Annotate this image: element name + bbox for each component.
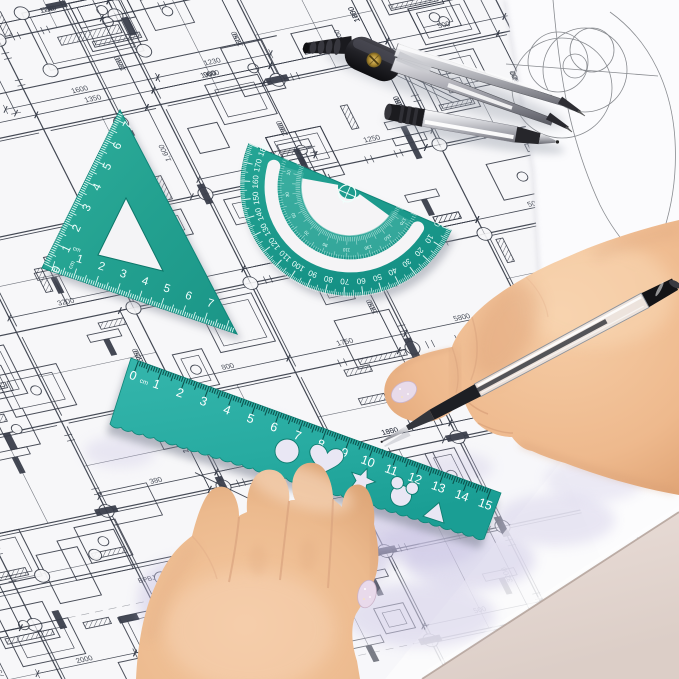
svg-text:160: 160 (251, 174, 261, 188)
svg-text:70: 70 (340, 277, 350, 286)
svg-text:150: 150 (251, 190, 262, 205)
svg-text:110: 110 (342, 247, 350, 252)
svg-text:60: 60 (356, 276, 366, 286)
